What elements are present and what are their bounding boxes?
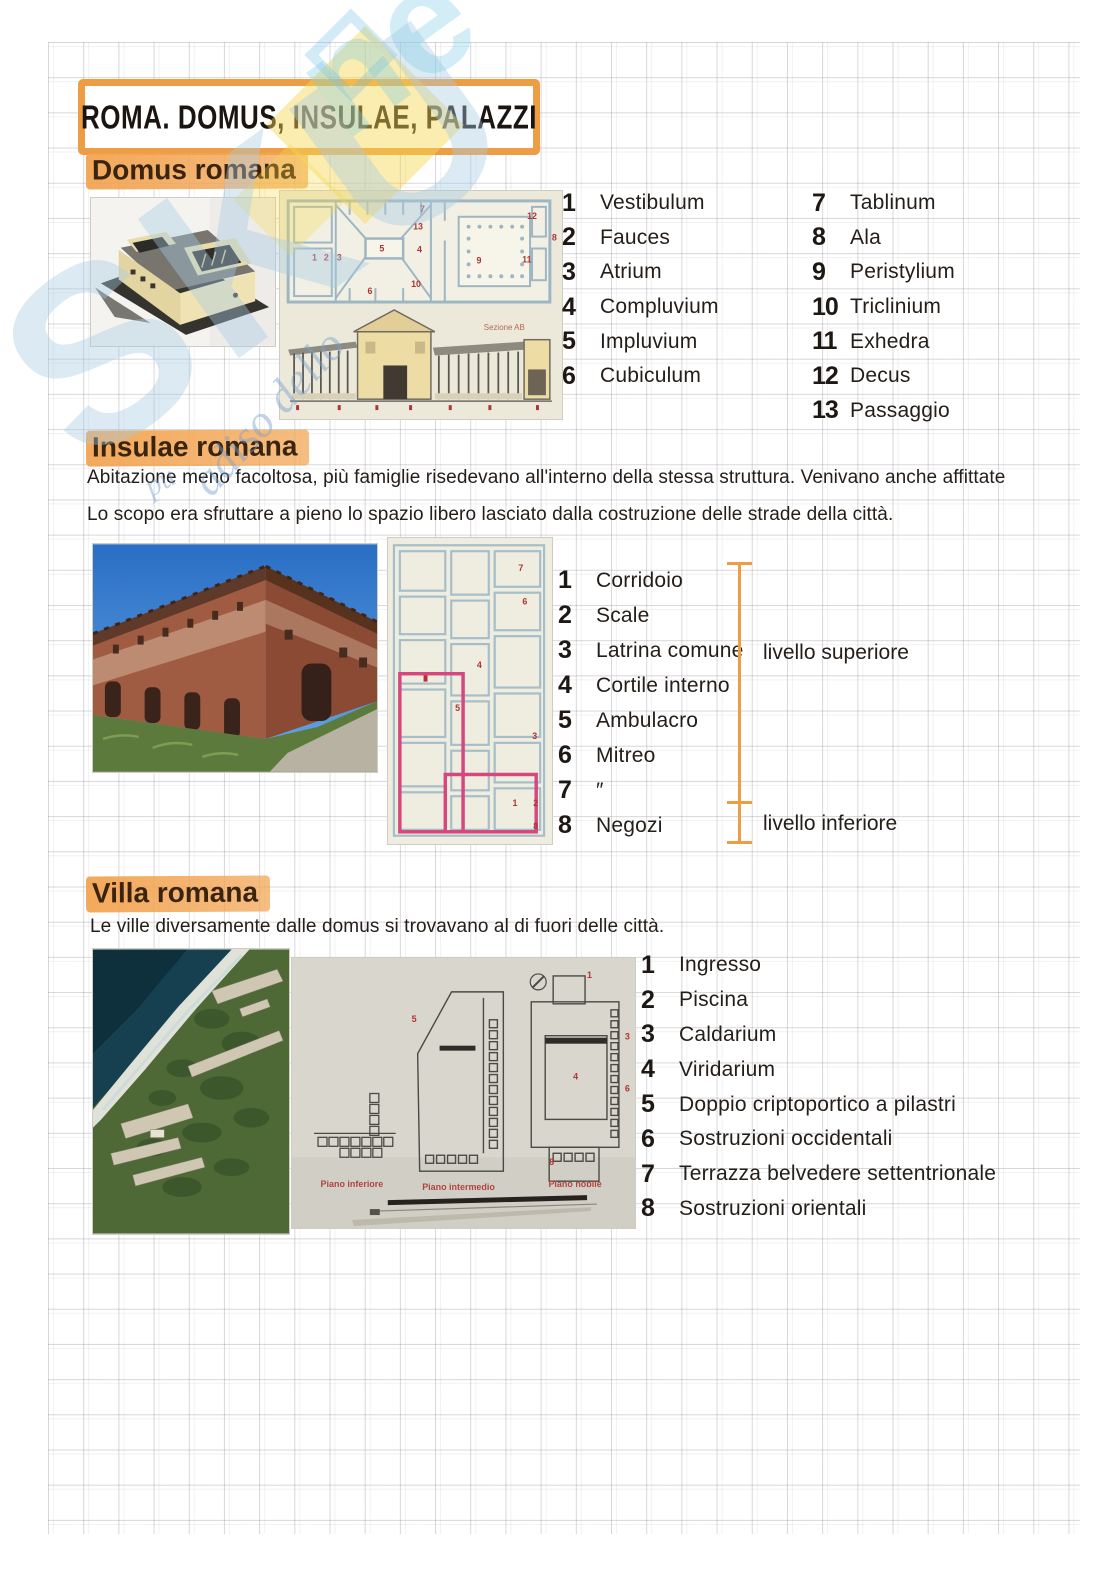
list-item: 3 Latrina comune bbox=[558, 633, 744, 668]
list-item-label: Decus bbox=[850, 364, 911, 388]
insula-plan-illustration: 7 6 4 5 3 1 2 8 bbox=[388, 538, 552, 844]
svg-text:2: 2 bbox=[324, 252, 329, 262]
villa-photo-illustration bbox=[93, 949, 289, 1234]
list-item-number: 10 bbox=[812, 293, 840, 322]
list-item-label: Ingresso bbox=[679, 953, 761, 977]
list-item-number: 3 bbox=[562, 258, 590, 287]
svg-text:6: 6 bbox=[625, 1084, 630, 1094]
section-caption: Sezione AB bbox=[484, 323, 525, 332]
villa-aerial-photo bbox=[92, 948, 290, 1235]
insula-photo-illustration bbox=[93, 544, 377, 772]
list-item-label: Fauces bbox=[600, 226, 670, 250]
domus-list-col1: 1 Vestibulum 2 Fauces 3 Atrium 4 Compluv… bbox=[562, 186, 719, 394]
list-item-label: Exhedra bbox=[850, 330, 930, 354]
list-item: 1 Corridoio bbox=[558, 563, 744, 598]
svg-text:4: 4 bbox=[477, 660, 482, 670]
list-item-number: 3 bbox=[641, 1020, 669, 1049]
list-item-label: Terrazza belvedere settentrionale bbox=[679, 1162, 996, 1186]
list-item-number: 4 bbox=[558, 671, 586, 700]
list-item: 1 Ingresso bbox=[641, 948, 996, 983]
list-item: 6 Sostruzioni occidentali bbox=[641, 1122, 996, 1157]
list-item-label: Corridoio bbox=[596, 569, 683, 593]
list-item: 8 Sostruzioni orientali bbox=[641, 1192, 996, 1227]
villa-section-header: Villa romana bbox=[86, 876, 270, 913]
list-item: 8 Negozi bbox=[558, 808, 744, 843]
insula-walls bbox=[394, 545, 544, 835]
list-item-number: 12 bbox=[812, 362, 840, 391]
svg-text:7: 7 bbox=[420, 204, 425, 214]
list-item-number: 7 bbox=[558, 776, 586, 805]
list-item: 10 Triclinium bbox=[812, 290, 955, 325]
list-item: 8 Ala bbox=[812, 221, 955, 256]
list-item-label: Mitreo bbox=[596, 744, 656, 768]
list-item-number: 4 bbox=[641, 1055, 669, 1084]
list-item-label: Caldarium bbox=[679, 1023, 777, 1047]
list-item: 13 Passaggio bbox=[812, 394, 955, 429]
list-item-number: 5 bbox=[558, 706, 586, 735]
svg-text:Piano inferiore: Piano inferiore bbox=[321, 1179, 384, 1189]
list-item: 5 Impluvium bbox=[562, 324, 719, 359]
domus-plan-illustration: 1 2 3 4 5 6 7 8 9 10 11 12 13 bbox=[280, 191, 562, 419]
svg-text:2: 2 bbox=[533, 798, 538, 808]
svg-text:13: 13 bbox=[413, 222, 423, 232]
svg-text:8: 8 bbox=[533, 821, 538, 831]
list-item: 2 Scale bbox=[558, 598, 744, 633]
svg-text:3: 3 bbox=[625, 1032, 630, 1042]
list-item-label: Negozi bbox=[596, 814, 663, 838]
svg-text:1: 1 bbox=[587, 970, 592, 980]
list-item-number: 3 bbox=[558, 636, 586, 665]
domus-model-illustration bbox=[91, 198, 275, 346]
list-item: 9 Peristylium bbox=[812, 255, 955, 290]
list-item-number: 2 bbox=[558, 601, 586, 630]
list-item: 7 Tablinum bbox=[812, 186, 955, 221]
list-item-number: 8 bbox=[558, 811, 586, 840]
list-item-number: 1 bbox=[562, 189, 590, 218]
insula-plan-image: 7 6 4 5 3 1 2 8 bbox=[387, 537, 553, 845]
list-item-label: Vestibulum bbox=[600, 191, 705, 215]
list-item-label: Compluvium bbox=[600, 295, 719, 319]
list-item: 7 Terrazza belvedere settentrionale bbox=[641, 1157, 996, 1192]
list-item: 5 Doppio criptoportico a pilastri bbox=[641, 1087, 996, 1122]
list-item-label: Viridarium bbox=[679, 1058, 775, 1082]
list-item-label: Sostruzioni occidentali bbox=[679, 1127, 893, 1151]
insula-list: 1 Corridoio 2 Scale 3 Latrina comune 4 C… bbox=[558, 563, 744, 843]
list-item-label: Passaggio bbox=[850, 399, 950, 423]
insulae-section-header: Insulae romana bbox=[86, 429, 310, 466]
list-item-label: Ala bbox=[850, 226, 881, 250]
list-item-label: Peristylium bbox=[850, 260, 955, 284]
svg-text:8: 8 bbox=[549, 1157, 554, 1167]
level-bracket-mid-cap bbox=[727, 801, 752, 804]
svg-text:10: 10 bbox=[411, 279, 421, 289]
level-upper-label: livello superiore bbox=[763, 641, 909, 665]
list-item: 11 Exhedra bbox=[812, 324, 955, 359]
villa-paragraph: Le ville diversamente dalle domus si tro… bbox=[90, 916, 664, 938]
notes-page: ROMA. DOMUS, INSULAE, PALAZZI Domus roma… bbox=[0, 0, 1116, 1579]
list-item-number: 5 bbox=[562, 327, 590, 356]
list-item: 5 Ambulacro bbox=[558, 703, 744, 738]
level-bracket-bottom-cap bbox=[727, 841, 752, 844]
list-item-number: 2 bbox=[562, 223, 590, 252]
domus-model-photo bbox=[90, 197, 276, 347]
list-item: 4 Viridarium bbox=[641, 1052, 996, 1087]
list-item-label: Sostruzioni orientali bbox=[679, 1197, 866, 1221]
list-item: 6 Mitreo bbox=[558, 738, 744, 773]
list-item: 2 Fauces bbox=[562, 221, 719, 256]
svg-text:4: 4 bbox=[417, 244, 422, 254]
list-item: 4 Cortile interno bbox=[558, 668, 744, 703]
list-item-label: Piscina bbox=[679, 988, 748, 1012]
list-item-number: 7 bbox=[641, 1160, 669, 1189]
svg-text:9: 9 bbox=[477, 255, 482, 265]
list-item: 2 Piscina bbox=[641, 983, 996, 1018]
list-item: 7 ″ bbox=[558, 773, 744, 808]
list-item-number: 13 bbox=[812, 396, 840, 425]
insulae-paragraph-line2: Lo scopo era sfruttare a pieno lo spazio… bbox=[87, 504, 893, 526]
domus-plan-image: 1 2 3 4 5 6 7 8 9 10 11 12 13 bbox=[279, 190, 563, 420]
list-item-label: Impluvium bbox=[600, 330, 698, 354]
list-item-number: 2 bbox=[641, 986, 669, 1015]
list-item-number: 4 bbox=[562, 293, 590, 322]
svg-text:3: 3 bbox=[532, 731, 537, 741]
list-item-number: 9 bbox=[812, 258, 840, 287]
svg-text:5: 5 bbox=[412, 1014, 417, 1024]
list-item-number: 6 bbox=[558, 741, 586, 770]
list-item-label: Tablinum bbox=[850, 191, 936, 215]
list-item-label: Atrium bbox=[600, 260, 662, 284]
domus-section-drawing: Sezione AB bbox=[288, 310, 552, 410]
list-item-number: 1 bbox=[641, 951, 669, 980]
list-item-number: 5 bbox=[641, 1090, 669, 1119]
list-item-number: 1 bbox=[558, 566, 586, 595]
svg-text:6: 6 bbox=[367, 286, 372, 296]
list-item-number: 8 bbox=[812, 223, 840, 252]
page-title-box: ROMA. DOMUS, INSULAE, PALAZZI bbox=[78, 79, 540, 155]
list-item: 6 Cubiculum bbox=[562, 359, 719, 394]
svg-text:1: 1 bbox=[312, 252, 317, 262]
list-item-label: Doppio criptoportico a pilastri bbox=[679, 1093, 956, 1117]
list-item-number: 6 bbox=[562, 362, 590, 391]
list-item-label: Triclinium bbox=[850, 295, 941, 319]
level-lower-label: livello inferiore bbox=[763, 812, 897, 836]
page-title: ROMA. DOMUS, INSULAE, PALAZZI bbox=[81, 97, 537, 137]
svg-text:4: 4 bbox=[573, 1072, 578, 1082]
svg-text:6: 6 bbox=[522, 597, 527, 607]
domus-list-col2: 7 Tablinum 8 Ala 9 Peristylium 10 Tricli… bbox=[812, 186, 955, 428]
svg-text:11: 11 bbox=[522, 254, 531, 264]
list-item-number: 8 bbox=[641, 1194, 669, 1223]
domus-section-header: Domus romana bbox=[86, 152, 308, 189]
svg-text:5: 5 bbox=[455, 703, 460, 713]
villa-plan-illustration: 1 3 4 5 6 8 Piano inferiore Piano interm… bbox=[292, 958, 635, 1228]
svg-text:Piano nobile: Piano nobile bbox=[548, 1179, 601, 1189]
svg-text:5: 5 bbox=[379, 243, 384, 253]
svg-text:3: 3 bbox=[337, 252, 342, 262]
list-item-label: Ambulacro bbox=[596, 709, 698, 733]
svg-text:1: 1 bbox=[512, 798, 517, 808]
svg-text:Piano intermedio: Piano intermedio bbox=[422, 1182, 495, 1192]
villa-plan-image: 1 3 4 5 6 8 Piano inferiore Piano interm… bbox=[291, 957, 636, 1229]
level-bracket-top-cap bbox=[727, 562, 752, 565]
list-item-label: Scale bbox=[596, 604, 650, 628]
svg-text:12: 12 bbox=[527, 211, 537, 221]
list-item-number: 6 bbox=[641, 1125, 669, 1154]
svg-text:7: 7 bbox=[518, 563, 523, 573]
insula-photo bbox=[92, 543, 378, 773]
list-item-number: 7 bbox=[812, 189, 840, 218]
list-item-number: 11 bbox=[812, 327, 840, 356]
insulae-paragraph-line1: Abitazione meno facoltosa, più famiglie … bbox=[87, 467, 1005, 489]
list-item: 3 Caldarium bbox=[641, 1018, 996, 1053]
list-item-label: Latrina comune bbox=[596, 639, 744, 663]
list-item: 4 Compluvium bbox=[562, 290, 719, 325]
list-item-label: Cubiculum bbox=[600, 364, 701, 388]
list-item: 12 Decus bbox=[812, 359, 955, 394]
list-item-label: ″ bbox=[596, 779, 604, 803]
svg-text:8: 8 bbox=[552, 233, 557, 243]
list-item-label: Cortile interno bbox=[596, 674, 730, 698]
list-item: 3 Atrium bbox=[562, 255, 719, 290]
villa-list: 1 Ingresso 2 Piscina 3 Caldarium 4 Virid… bbox=[641, 948, 996, 1226]
list-item: 1 Vestibulum bbox=[562, 186, 719, 221]
